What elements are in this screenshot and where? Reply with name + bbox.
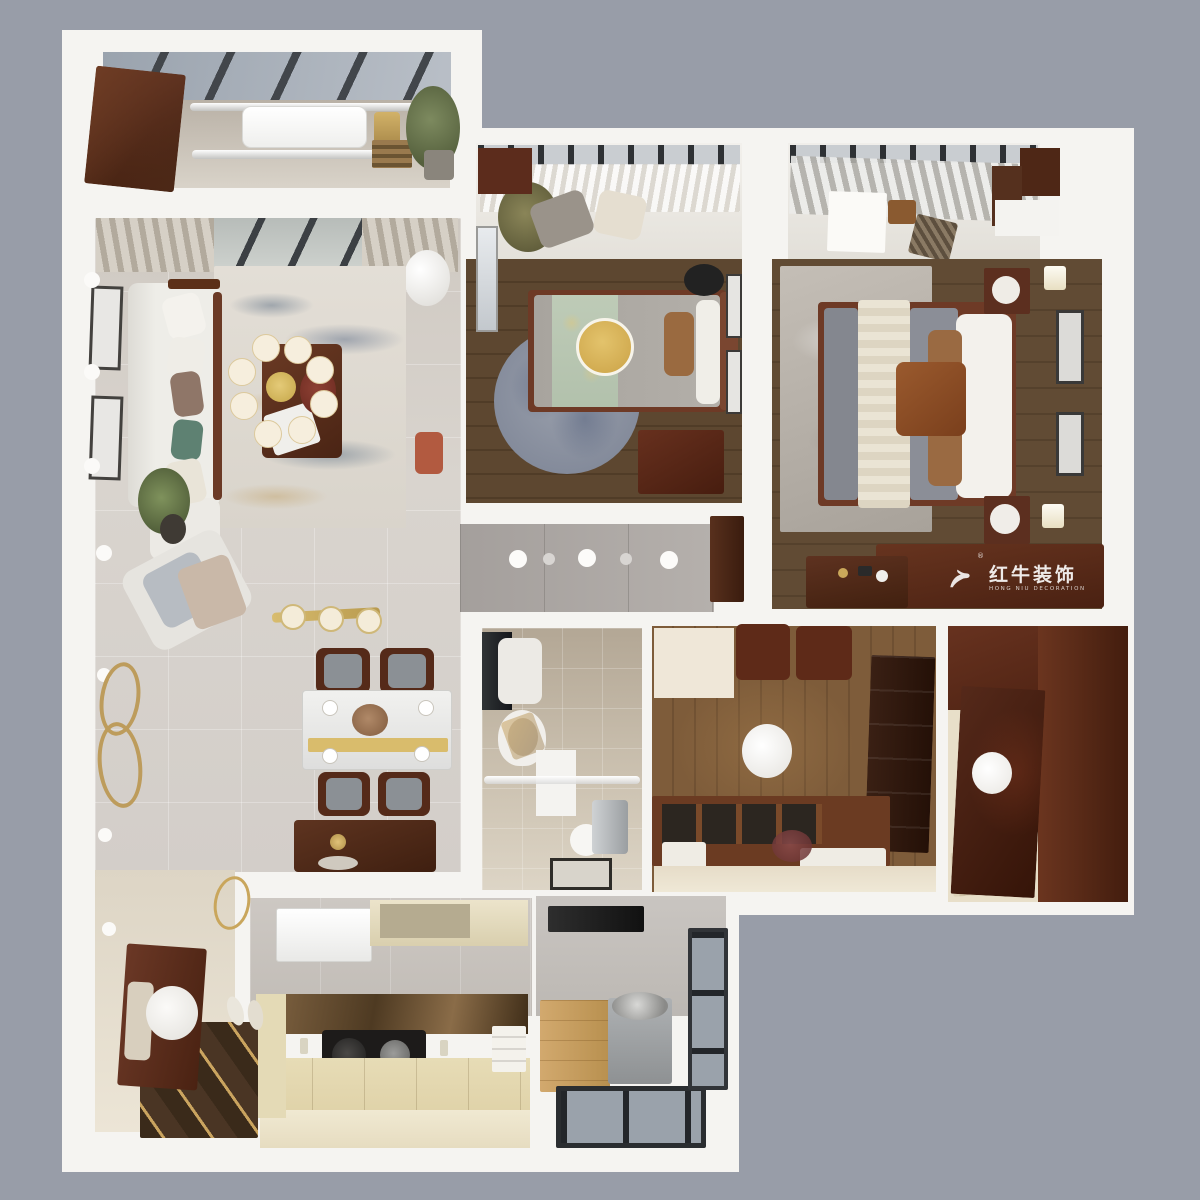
dining-chair-4-seat xyxy=(386,778,422,810)
living-wall-light-6 xyxy=(98,828,112,842)
kitchen-bottle-1 xyxy=(300,1038,308,1054)
bedroom2-desk xyxy=(638,430,724,494)
hallway-light-1 xyxy=(509,550,527,568)
living-curtain-left xyxy=(96,218,214,272)
chandelier-center xyxy=(266,372,296,402)
study-ceiling-lamp xyxy=(742,724,792,778)
bull-logo-icon xyxy=(948,569,972,589)
kitchen-bottle-2 xyxy=(440,1040,448,1056)
watermark-cn-text: 红牛装饰 xyxy=(989,566,1086,585)
dining-sideboard xyxy=(294,820,436,872)
entry-stool xyxy=(146,986,198,1040)
entry-wall-light xyxy=(102,922,116,936)
balcony-wood-stack xyxy=(372,140,412,168)
kitchen-fridge xyxy=(276,908,372,962)
utility-window-right xyxy=(688,928,728,1090)
kitchen-counter-main xyxy=(260,1058,530,1116)
kitchen-cabinet-glass xyxy=(380,904,470,938)
bathroom-shower-set xyxy=(592,800,628,854)
cloakroom-lamp xyxy=(972,752,1012,794)
bedroom2-wall-mirror xyxy=(476,226,498,332)
dining-pendant-globe-3 xyxy=(356,608,382,634)
dining-centerpiece xyxy=(352,704,388,736)
sideboard-knob xyxy=(330,834,346,850)
master-bay-tray xyxy=(888,200,916,224)
master-white-shelf xyxy=(995,200,1059,236)
kitchen-glossy-counter xyxy=(272,994,528,1034)
master-bay-mat xyxy=(827,191,887,253)
chandelier-globe-8 xyxy=(228,358,256,386)
floorplan-render: ® 红牛装饰 HONG NIU DECORATION xyxy=(0,0,1200,1200)
bathroom-shower-drain xyxy=(550,858,612,890)
hallway-light-5 xyxy=(660,551,678,569)
sideboard-plate xyxy=(318,856,358,870)
study-chair-1 xyxy=(736,624,790,680)
living-wall-light-3 xyxy=(84,458,100,474)
chandelier-globe-1 xyxy=(252,334,280,362)
bedroom2-corner-cabinet xyxy=(478,148,532,194)
tv-stool-red xyxy=(415,432,443,474)
living-wall-frame-1 xyxy=(89,285,124,370)
balcony-plant-pot xyxy=(424,150,454,180)
master-wall-frame-1 xyxy=(1056,310,1084,384)
bedroom2-black-stool xyxy=(684,264,724,296)
master-vanity-white-item xyxy=(876,570,888,582)
bedroom2-wall-frame-1 xyxy=(726,274,742,338)
dining-plate-2 xyxy=(418,700,434,716)
sofa-wood-trim-right xyxy=(213,292,222,500)
dining-chair-3-seat xyxy=(326,778,362,810)
utility-wok xyxy=(612,992,668,1020)
master-wall-frame-2 xyxy=(1056,412,1084,476)
hallway-light-3 xyxy=(578,549,596,567)
chandelier-globe-3 xyxy=(306,356,334,384)
bathroom-glass-rail xyxy=(484,776,640,784)
master-duvet-left xyxy=(824,308,858,500)
dining-plate-1 xyxy=(322,700,338,716)
hallway-end-cabinet xyxy=(710,516,744,602)
living-window xyxy=(214,218,362,268)
living-wall-light-4 xyxy=(96,545,112,561)
study-desk-corner xyxy=(654,628,734,698)
master-vanity-gold-item xyxy=(838,568,848,578)
dining-chair-1-seat xyxy=(324,654,362,688)
sofa-pillow-brown xyxy=(169,370,205,418)
chandelier-globe-5 xyxy=(288,416,316,444)
utility-window-bottom xyxy=(556,1086,706,1148)
dining-chair-2-seat xyxy=(388,654,426,688)
bathroom-sink xyxy=(498,638,542,704)
bedroom2-pillow-white xyxy=(696,300,720,404)
bedroom2-pillow-brown xyxy=(664,312,694,376)
chandelier-globe-2 xyxy=(284,336,312,364)
cloakroom-wardrobe-right xyxy=(1038,626,1128,902)
utility-wood-cabinet xyxy=(540,1000,610,1092)
master-vanity xyxy=(806,556,908,608)
dining-plate-3 xyxy=(322,748,338,764)
master-vanity-dark-item xyxy=(858,566,872,576)
living-wall-light-1 xyxy=(84,272,100,288)
chandelier-globe-4 xyxy=(310,390,338,418)
utility-dark-appliance xyxy=(548,906,644,932)
hallway-light-2 xyxy=(543,553,555,565)
kitchen-counter-front xyxy=(260,1110,530,1148)
registered-mark: ® xyxy=(977,552,984,560)
kitchen-drawers xyxy=(492,1026,526,1072)
master-nightstand-top-tray xyxy=(992,276,1020,304)
master-sconce-1 xyxy=(1044,266,1066,290)
brand-watermark: ® 红牛装饰 HONG NIU DECORATION xyxy=(948,556,1100,602)
hallway-light-4 xyxy=(620,553,632,565)
study-floor-beige-strip xyxy=(654,866,936,892)
watermark-en-text: HONG NIU DECORATION xyxy=(989,587,1086,593)
dining-pendant-globe-1 xyxy=(280,604,306,630)
bedroom2-round-cushion xyxy=(576,318,634,376)
study-chair-2 xyxy=(796,626,852,680)
chandelier-globe-6 xyxy=(254,420,282,448)
study-dried-flowers xyxy=(772,830,812,862)
master-nightstand-bottom-tray xyxy=(990,504,1020,534)
master-bed-tray-table xyxy=(896,362,966,436)
dining-plate-4 xyxy=(414,746,430,762)
sofa-wood-trim-top xyxy=(168,279,220,289)
living-wall-light-2 xyxy=(84,364,100,380)
living-laundry-drum xyxy=(404,250,450,306)
dining-pendant-globe-2 xyxy=(318,606,344,632)
chandelier-globe-7 xyxy=(230,392,258,420)
bedroom2-wall-frame-2 xyxy=(726,350,742,414)
balcony-cabinet xyxy=(84,66,186,193)
living-plant-vase xyxy=(160,514,186,544)
sofa-pillow-teal xyxy=(170,419,204,462)
master-corner-wardrobe xyxy=(1020,148,1060,196)
hallway-floor xyxy=(460,524,714,612)
balcony-washing-machine xyxy=(242,106,367,148)
master-sconce-2 xyxy=(1042,504,1064,528)
